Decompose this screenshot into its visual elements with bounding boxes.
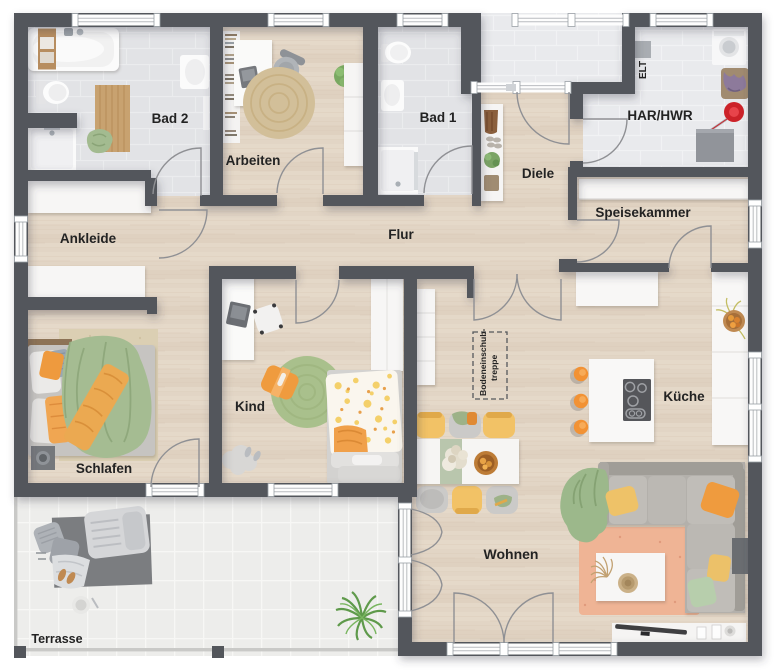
svg-text:Bad 2: Bad 2 (152, 111, 189, 126)
svg-text:Terrasse: Terrasse (31, 632, 82, 646)
svg-text:ELT: ELT (638, 61, 649, 79)
svg-text:Flur: Flur (388, 227, 414, 242)
svg-text:Speisekammer: Speisekammer (595, 205, 691, 220)
svg-text:Arbeiten: Arbeiten (226, 153, 281, 168)
svg-text:Küche: Küche (663, 389, 705, 404)
svg-text:Schlafen: Schlafen (76, 461, 132, 476)
svg-text:Bad 1: Bad 1 (420, 110, 457, 125)
svg-text:Bodeneinschub-: Bodeneinschub- (478, 329, 488, 396)
svg-text:HAR/HWR: HAR/HWR (627, 108, 692, 123)
svg-text:Wohnen: Wohnen (484, 546, 539, 562)
svg-text:Kind: Kind (235, 399, 265, 414)
svg-text:Diele: Diele (522, 166, 555, 181)
svg-text:treppe: treppe (489, 355, 499, 381)
svg-text:Ankleide: Ankleide (60, 231, 117, 246)
